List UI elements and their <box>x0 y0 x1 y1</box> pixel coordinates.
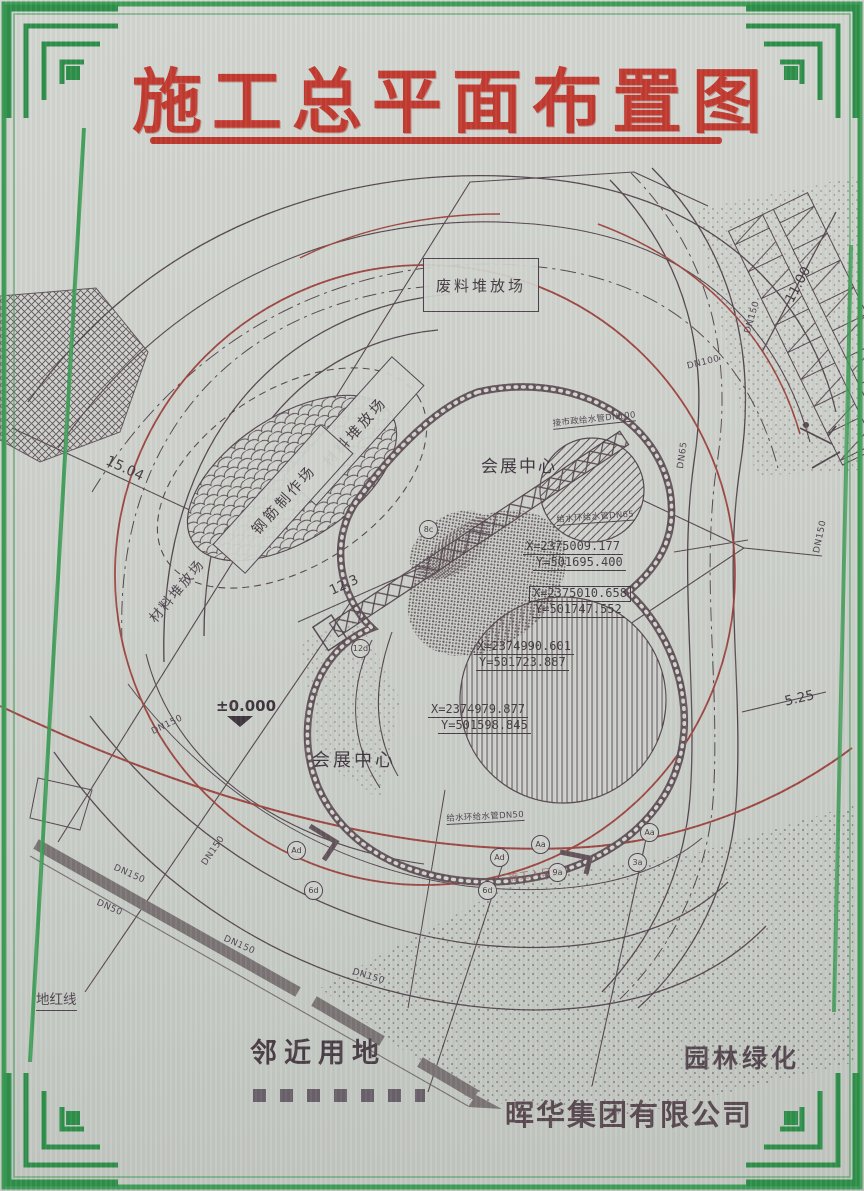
construction-plan-poster: 施工总平面布置图 废料堆放场 材料堆放场 钢筋制作场 材料堆放场 会展中心 会展… <box>0 0 864 1191</box>
inner-green-line-left <box>30 128 84 1062</box>
title-underline <box>150 137 722 144</box>
elevation-triangle-icon <box>227 716 253 727</box>
coordinate-y-2: Y=501747.552 <box>532 603 625 618</box>
convention-center-label-top: 会展中心 <box>481 452 557 477</box>
coordinate-y-4: Y=501598.845 <box>438 719 531 734</box>
marker-aa-2: Aa <box>640 823 659 842</box>
clipped-text-fragments <box>253 1089 425 1102</box>
marker-aa-1: Aa <box>531 835 550 854</box>
adjacent-land-label: 邻近用地 <box>250 1031 386 1070</box>
coordinate-y-1: Y=501695.400 <box>533 556 626 571</box>
coordinate-x-4: X=2374979.877 <box>428 703 528 718</box>
landscape-label: 园林绿化 <box>684 1039 800 1075</box>
marker-ad-2: Ad <box>490 848 509 867</box>
coordinate-y-3: Y=501723.887 <box>476 656 569 671</box>
site-plan-linework <box>0 0 864 1191</box>
marker-8c: 8c <box>419 520 438 539</box>
coordinate-x-1: X=2375009.177 <box>523 540 623 555</box>
coordinate-x-2: X=2375010.658 <box>529 586 631 602</box>
marker-6d-1: 6d <box>304 881 323 900</box>
poster-title: 施工总平面布置图 <box>132 46 732 147</box>
waste-yard-box: 废料堆放场 <box>423 258 539 312</box>
company-name: 晖华集团有限公司 <box>505 1092 753 1134</box>
elevation-label: ±0.000 <box>216 697 276 715</box>
marker-ad-1: Ad <box>287 841 306 860</box>
marker-12d: 12d <box>351 639 370 658</box>
marker-3a: 3a <box>628 853 647 872</box>
coordinate-x-3: X=2374990.601 <box>474 640 574 655</box>
marker-6d-2: 6d <box>478 881 497 900</box>
convention-center-label-bottom: 会展中心 <box>312 746 396 772</box>
red-boundary-label: 地红线 <box>36 988 77 1011</box>
